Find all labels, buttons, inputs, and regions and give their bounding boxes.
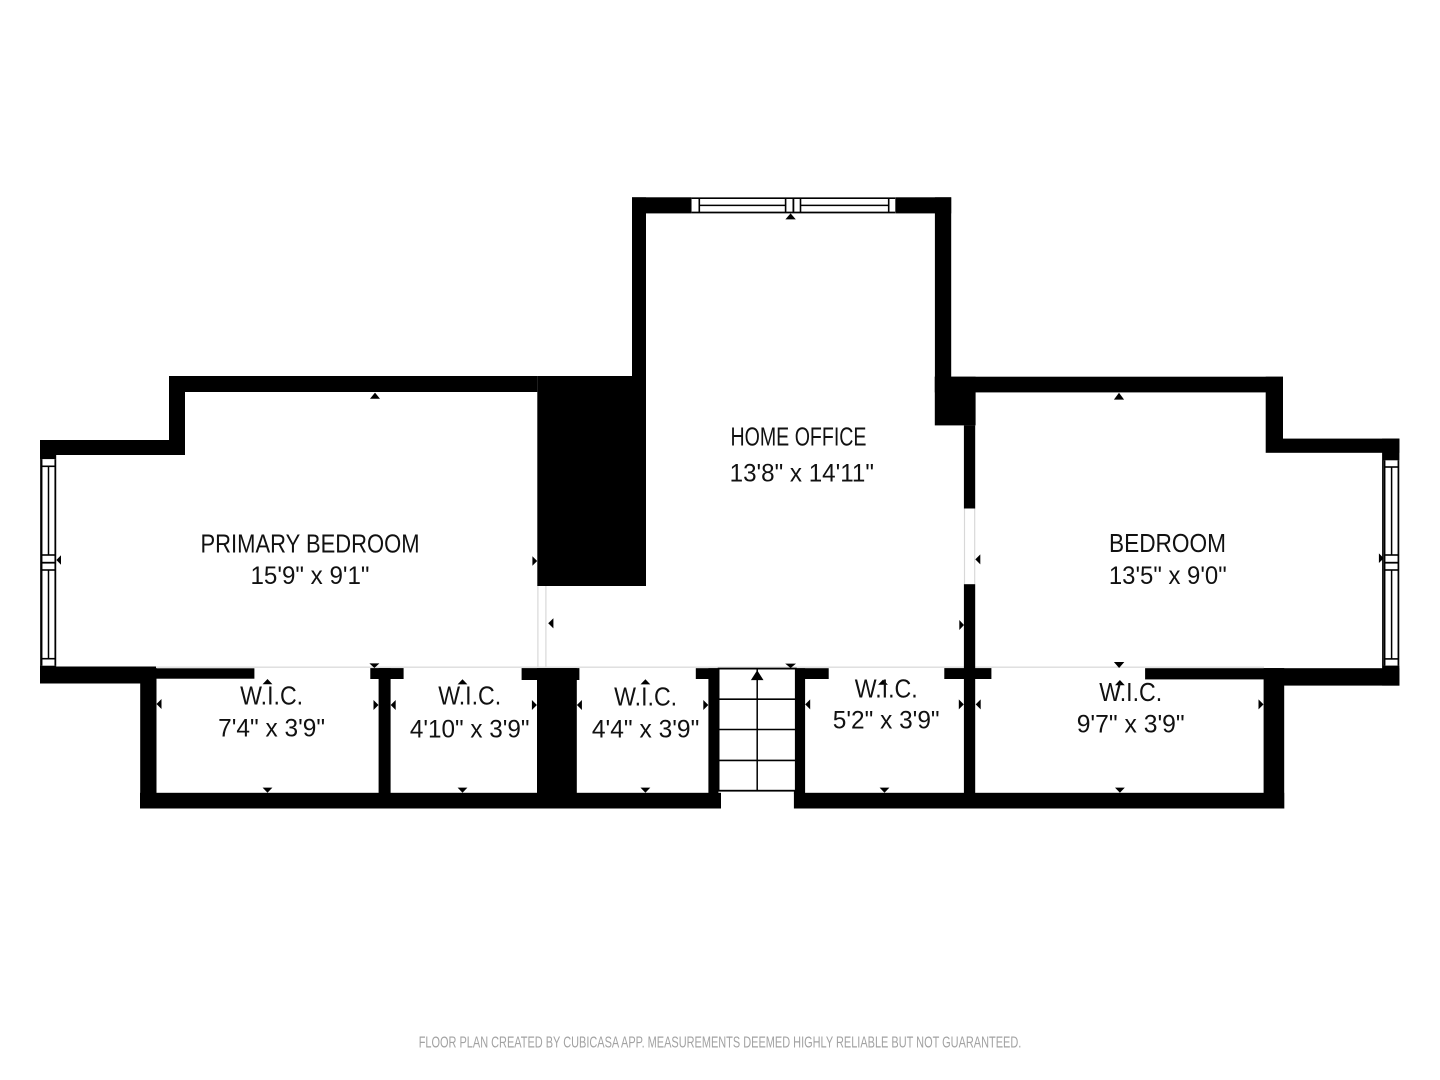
svg-text:BEDROOM: BEDROOM: [1109, 530, 1226, 558]
svg-text:HOME OFFICE: HOME OFFICE: [731, 424, 867, 452]
svg-text:4'10" x 3'9": 4'10" x 3'9": [410, 716, 530, 744]
svg-text:FLOOR PLAN CREATED BY CUBICASA: FLOOR PLAN CREATED BY CUBICASA APP. MEAS…: [419, 1035, 1022, 1052]
svg-text:15'9" x 9'1": 15'9" x 9'1": [251, 562, 370, 590]
svg-text:W.I.C.: W.I.C.: [855, 675, 918, 703]
svg-text:W.I.C.: W.I.C.: [240, 683, 303, 711]
svg-text:9'7" x 3'9": 9'7" x 3'9": [1077, 710, 1185, 738]
svg-text:W.I.C.: W.I.C.: [1099, 679, 1162, 707]
svg-text:PRIMARY BEDROOM: PRIMARY BEDROOM: [201, 531, 420, 559]
svg-text:W.I.C.: W.I.C.: [614, 683, 677, 711]
svg-text:W.I.C.: W.I.C.: [438, 683, 501, 711]
svg-text:4'4" x 3'9": 4'4" x 3'9": [592, 715, 700, 743]
svg-text:7'4" x 3'9": 7'4" x 3'9": [218, 715, 325, 743]
svg-text:5'2" x 3'9": 5'2" x 3'9": [833, 707, 940, 735]
svg-text:13'5" x 9'0": 13'5" x 9'0": [1109, 562, 1227, 590]
svg-text:13'8" x 14'11": 13'8" x 14'11": [730, 460, 874, 488]
